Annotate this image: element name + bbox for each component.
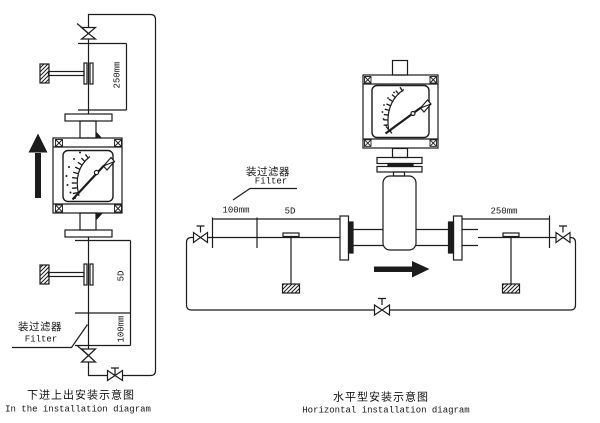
valve-icon-top [77,24,96,40]
filter-label-en-right: Filter [255,178,287,187]
caption-zh-right: 水平型安装示意图 [333,393,429,404]
flow-right-arrow-icon [374,261,430,278]
dim-label-filter-left: 100mm [118,315,127,342]
dim-label-outlet-left: 250mm [114,61,123,88]
flange-bar [65,230,112,237]
meter-neck-bottom [80,213,96,230]
dim-label-outlet-right: 250mm [490,208,517,217]
dim-label-straight-left: 5D [118,271,127,282]
caption-zh-left: 下进上出安装示意图 [27,391,135,402]
dim-label-filter-right: 100mm [222,207,249,216]
bypass-valve-icon [108,368,123,381]
caption-en-left: In the installation diagram [5,406,151,415]
filter-leader-line [233,189,297,201]
valve-icon-outlet [556,226,570,243]
pipe-bracket-upper [40,63,93,84]
valve-icon-inlet [194,226,208,243]
filter-label-en-left: Filter [25,336,57,345]
meter-neck-top [80,121,96,138]
gauge-dial-icon [382,89,431,134]
flow-meter-head [363,61,438,149]
dimension-lines [127,44,131,346]
dimension-lines [213,216,550,249]
bypass-line [187,238,576,311]
pipe-support-right [503,233,520,293]
horizontal-installation-drawing [187,61,576,316]
caption-en-right: Horizontal installation diagram [302,407,469,416]
pipe-line [208,230,557,246]
pipe-support-left [283,233,300,293]
installation-diagram-page: 250mm 5D 100mm 装过滤器 Filter 下进上出安装示意图 In … [0,0,600,423]
gauge-window [372,86,429,138]
flow-meter-body [377,149,422,251]
valve-icon-bottom [77,346,96,363]
dim-label-straight-right: 5D [285,208,296,217]
flow-up-arrow-icon [29,134,48,199]
pipe-bracket-lower [40,264,93,285]
flange-bar [65,114,112,121]
weld-mark-icon [96,131,103,221]
flow-meter-head [53,138,122,213]
gauge-dial-icon [66,152,115,200]
filter-label-zh-left: 装过滤器 [18,322,62,333]
bypass-valve-icon [375,299,390,316]
bolt-icons [365,77,437,147]
pipe-flanges [340,216,462,260]
